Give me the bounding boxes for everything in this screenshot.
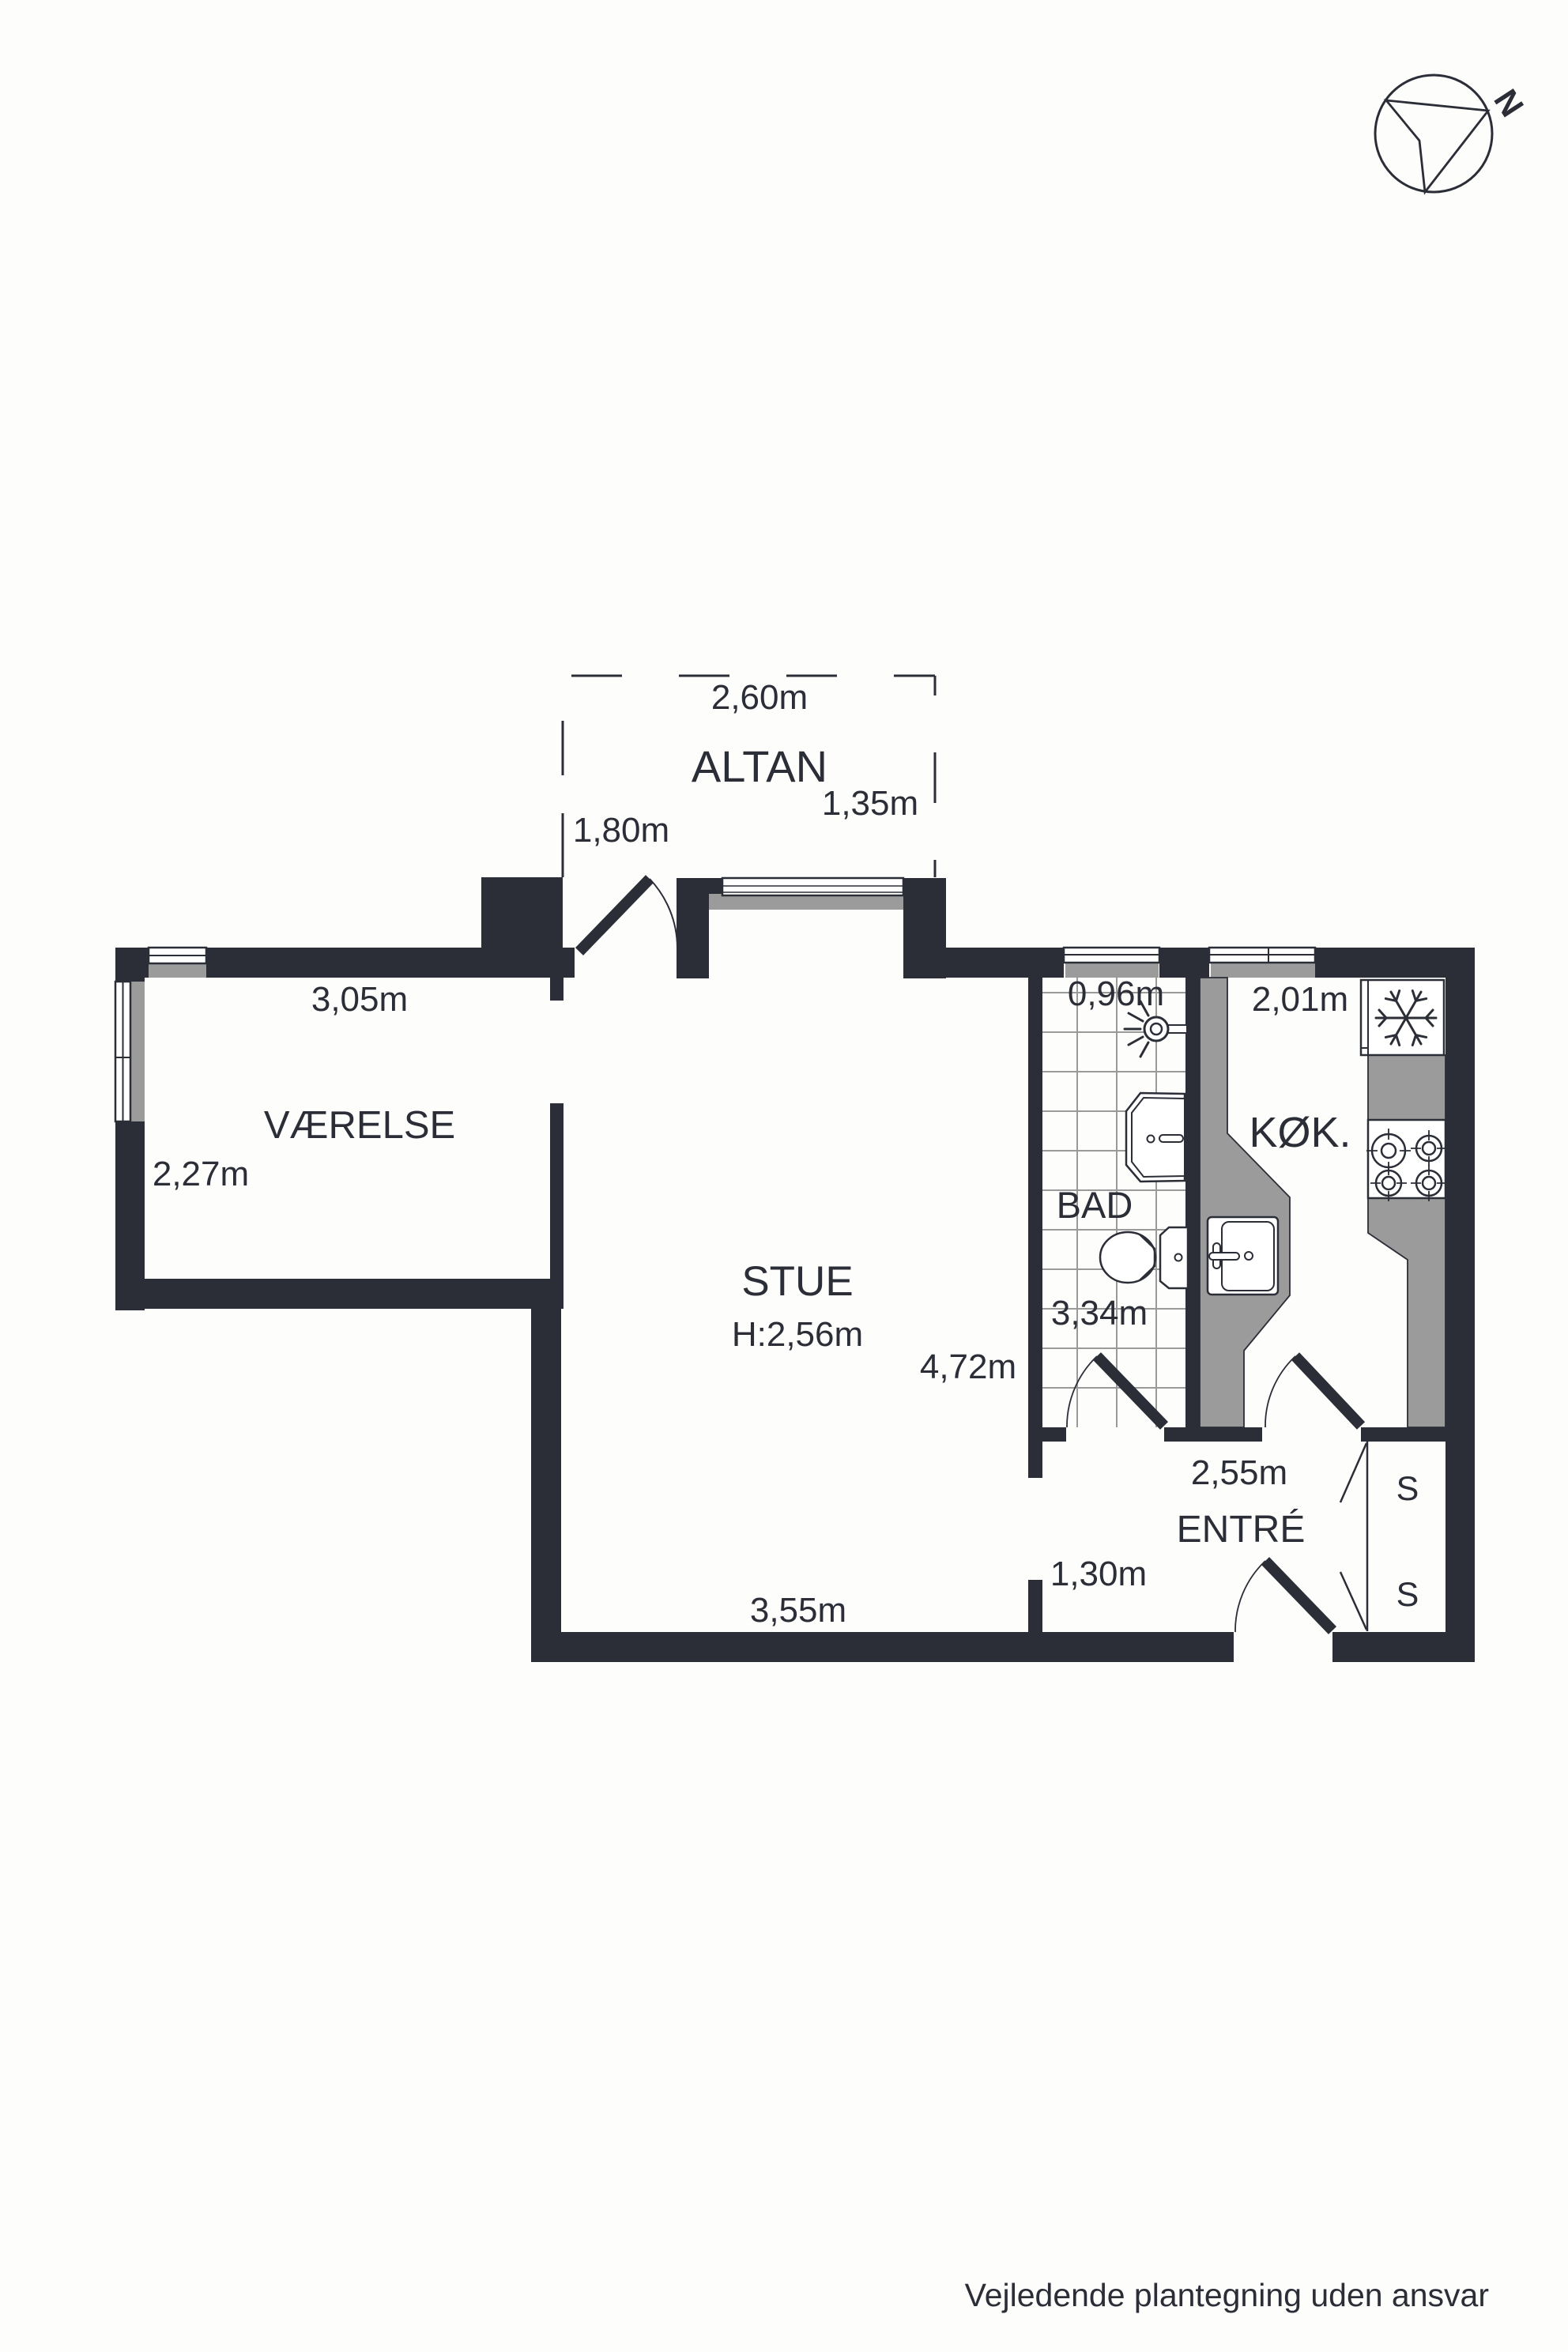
svg-text:VÆRELSE: VÆRELSE [264, 1104, 455, 1147]
svg-text:4,72m: 4,72m [920, 1347, 1016, 1386]
svg-text:0,96m: 0,96m [1068, 974, 1164, 1013]
svg-text:2,27m: 2,27m [153, 1155, 249, 1193]
svg-text:2,60m: 2,60m [711, 678, 808, 717]
svg-text:ENTRÉ: ENTRÉ [1177, 1509, 1306, 1551]
svg-text:ALTAN: ALTAN [692, 741, 827, 791]
svg-text:S: S [1396, 1470, 1419, 1508]
svg-text:3,05m: 3,05m [311, 980, 408, 1019]
svg-text:BAD: BAD [1057, 1184, 1133, 1226]
svg-text:3,55m: 3,55m [750, 1591, 846, 1630]
svg-text:H:2,56m: H:2,56m [732, 1315, 863, 1354]
svg-text:KØK.: KØK. [1249, 1109, 1351, 1156]
svg-text:2,55m: 2,55m [1191, 1453, 1287, 1492]
svg-text:1,30m: 1,30m [1050, 1555, 1147, 1593]
svg-text:1,80m: 1,80m [573, 811, 669, 850]
svg-text:3,34m: 3,34m [1051, 1294, 1148, 1332]
svg-text:2,01m: 2,01m [1252, 980, 1348, 1019]
svg-text:STUE: STUE [741, 1258, 853, 1305]
svg-text:S: S [1396, 1576, 1419, 1614]
svg-text:1,35m: 1,35m [822, 784, 918, 823]
svg-text:Vejledende plantegning uden an: Vejledende plantegning uden ansvar [965, 2277, 1489, 2313]
